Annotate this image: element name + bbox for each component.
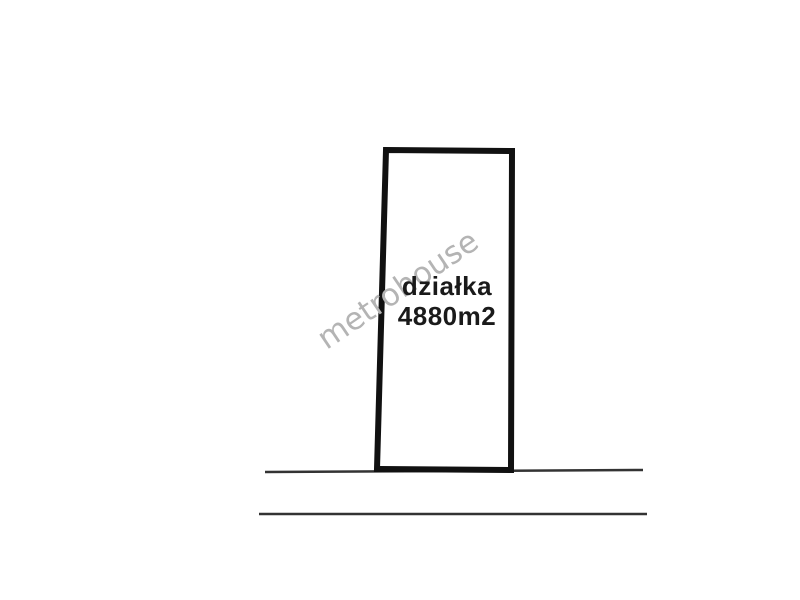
plot-label-name: działka bbox=[367, 271, 527, 301]
plot-label-area: 4880m2 bbox=[367, 301, 527, 331]
plot-diagram: metrohouse działka 4880m2 bbox=[0, 0, 800, 600]
plot-label: działka 4880m2 bbox=[367, 271, 527, 331]
